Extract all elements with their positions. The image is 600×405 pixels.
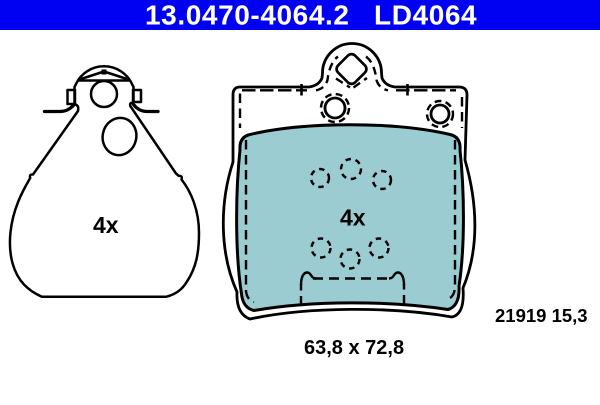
svg-text:4x: 4x <box>93 212 119 238</box>
svg-text:LD4064: LD4064 <box>374 0 477 31</box>
svg-text:63,8 x 72,8: 63,8 x 72,8 <box>304 337 404 359</box>
svg-text:4x: 4x <box>340 205 366 231</box>
svg-text:21919 15,3: 21919 15,3 <box>495 305 588 326</box>
svg-text:13.0470-4064.2: 13.0470-4064.2 <box>145 0 350 31</box>
